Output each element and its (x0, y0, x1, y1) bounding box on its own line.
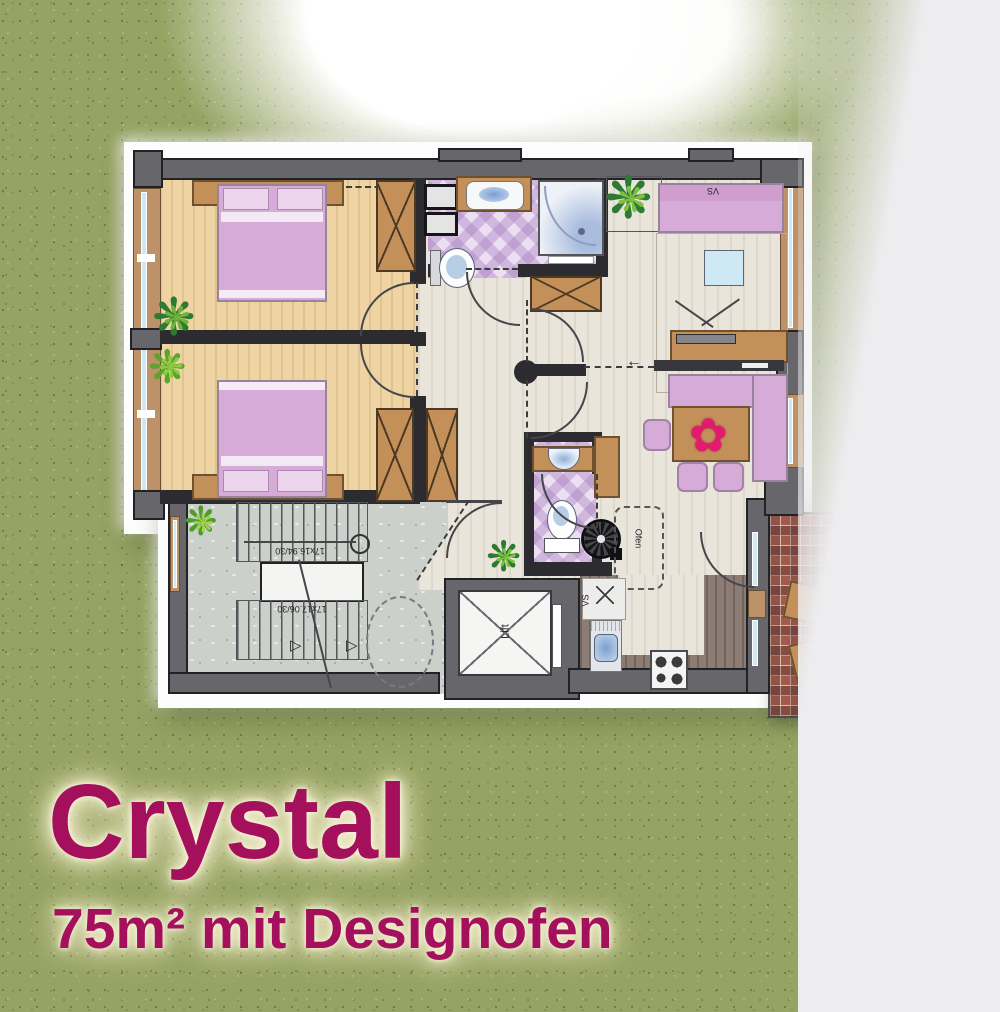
stair-dimension-upper: 17x16.94/30 (250, 546, 350, 555)
dining-chair (677, 462, 708, 492)
dining-chair (713, 462, 744, 492)
lift-door (552, 604, 562, 668)
toilet-bowl (446, 255, 467, 279)
washbasin-bowl (479, 187, 509, 202)
plant-icon: ❋ ❋ (184, 502, 230, 548)
white-fade-right (798, 0, 1000, 1012)
wc-toilet-tank (544, 538, 580, 553)
sliding-door-handle (742, 363, 768, 368)
oven-label: Ofen (634, 519, 643, 559)
plant-icon: ❋ ❋ (604, 170, 666, 232)
corner-bench (752, 374, 788, 482)
stair-dimension-lower: 17x17.06/30 (252, 604, 352, 613)
turning-circle-dashed (366, 596, 434, 688)
kitchen-sink-bowl (594, 634, 618, 662)
wall-corner-topleft (133, 150, 163, 188)
plant-icon: ❋ ❋ (152, 292, 208, 348)
stair-direction-arrow: ▷ (346, 638, 358, 653)
plant-icon: ❋ ❋ (148, 344, 200, 396)
counter-cross-mark (596, 586, 614, 604)
bath-shelf (424, 184, 458, 210)
wall-top-step (438, 148, 522, 162)
bed-footline (219, 382, 325, 390)
dining-chair (643, 419, 671, 451)
wardrobe (376, 408, 414, 502)
window-left-joint (137, 410, 155, 418)
door-opening-dashed (526, 300, 528, 362)
flower-icon: ✿ (689, 408, 728, 462)
wardrobe (376, 180, 416, 272)
door-opening-dashed (526, 380, 528, 438)
stair-guideline (244, 541, 356, 543)
pillow (223, 470, 269, 492)
balcony-window-jamb (748, 590, 766, 618)
kitchen-window-glazing (752, 620, 758, 666)
pillow (277, 470, 323, 492)
door-opening-dashed (596, 474, 598, 528)
kitchen-unit-label: VS (582, 591, 591, 611)
page-title: Crystal (48, 762, 407, 883)
entry-door-leaf (446, 500, 502, 503)
window-right-upper-glazing (788, 188, 793, 328)
wall-top-step (688, 148, 734, 162)
duvet-fold (221, 456, 323, 466)
sliding-door-track (584, 366, 654, 368)
shower-drain (578, 228, 585, 235)
hall-wardrobe (530, 276, 602, 312)
stove-cooktop (650, 650, 688, 690)
pillow (277, 188, 323, 210)
wall-wc-south (524, 562, 612, 576)
pillow (223, 188, 269, 210)
bath-shelf (424, 212, 458, 236)
door-opening-dashed (466, 268, 518, 270)
stair-landing (260, 562, 364, 602)
hall-closet (426, 408, 458, 502)
coffee-table (704, 250, 744, 286)
stair-start-post (350, 534, 370, 554)
duvet-fold (221, 212, 323, 222)
sofa-bed-label: VS (700, 186, 726, 195)
window-left-joint (137, 254, 155, 262)
stair-direction-arrow: ▷ (290, 638, 302, 653)
window-right-lower-glazing (788, 398, 793, 464)
slide-direction-arrow: ← (626, 354, 642, 370)
lift-label: Lift (501, 612, 512, 652)
door-opening-dashed (416, 346, 418, 396)
plant-icon: ❋ ❋ (486, 536, 532, 582)
pivot-wall-stub (532, 364, 586, 376)
page-subtitle: 75m² mit Designofen (52, 896, 613, 962)
door-opening-dashed (416, 282, 418, 332)
bed-footline (219, 290, 325, 298)
window-stair-glazing (173, 520, 177, 588)
tv-screen (676, 334, 736, 344)
towel-rail (548, 256, 594, 264)
floor-plan-scene: VS ← ✿ Ofen VS Lift 17x16.94/30 17x17.06… (0, 0, 1000, 1012)
